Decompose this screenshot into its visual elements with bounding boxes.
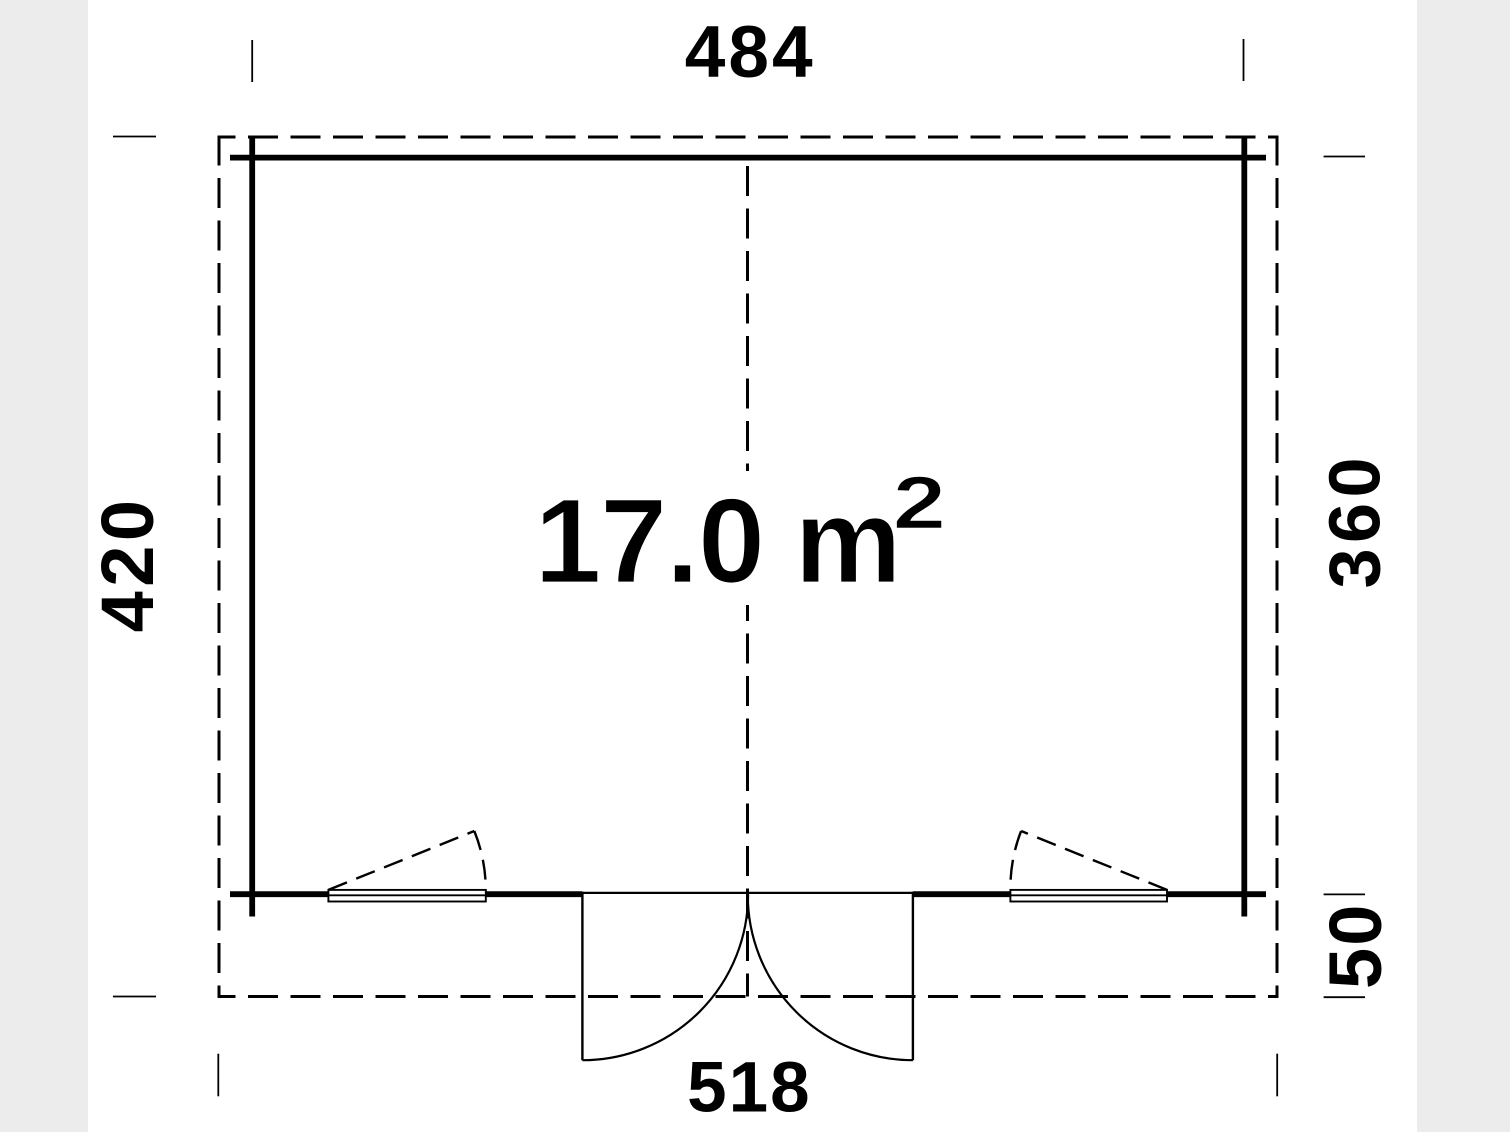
svg-text:518: 518 bbox=[687, 1049, 811, 1128]
svg-text:360: 360 bbox=[1316, 452, 1396, 589]
svg-text:17.0: 17.0 bbox=[534, 472, 764, 608]
svg-text:484: 484 bbox=[685, 12, 816, 93]
svg-text:2: 2 bbox=[893, 461, 946, 545]
svg-text:50: 50 bbox=[1314, 903, 1397, 989]
svg-text:420: 420 bbox=[86, 495, 169, 632]
svg-text:m: m bbox=[794, 472, 902, 608]
